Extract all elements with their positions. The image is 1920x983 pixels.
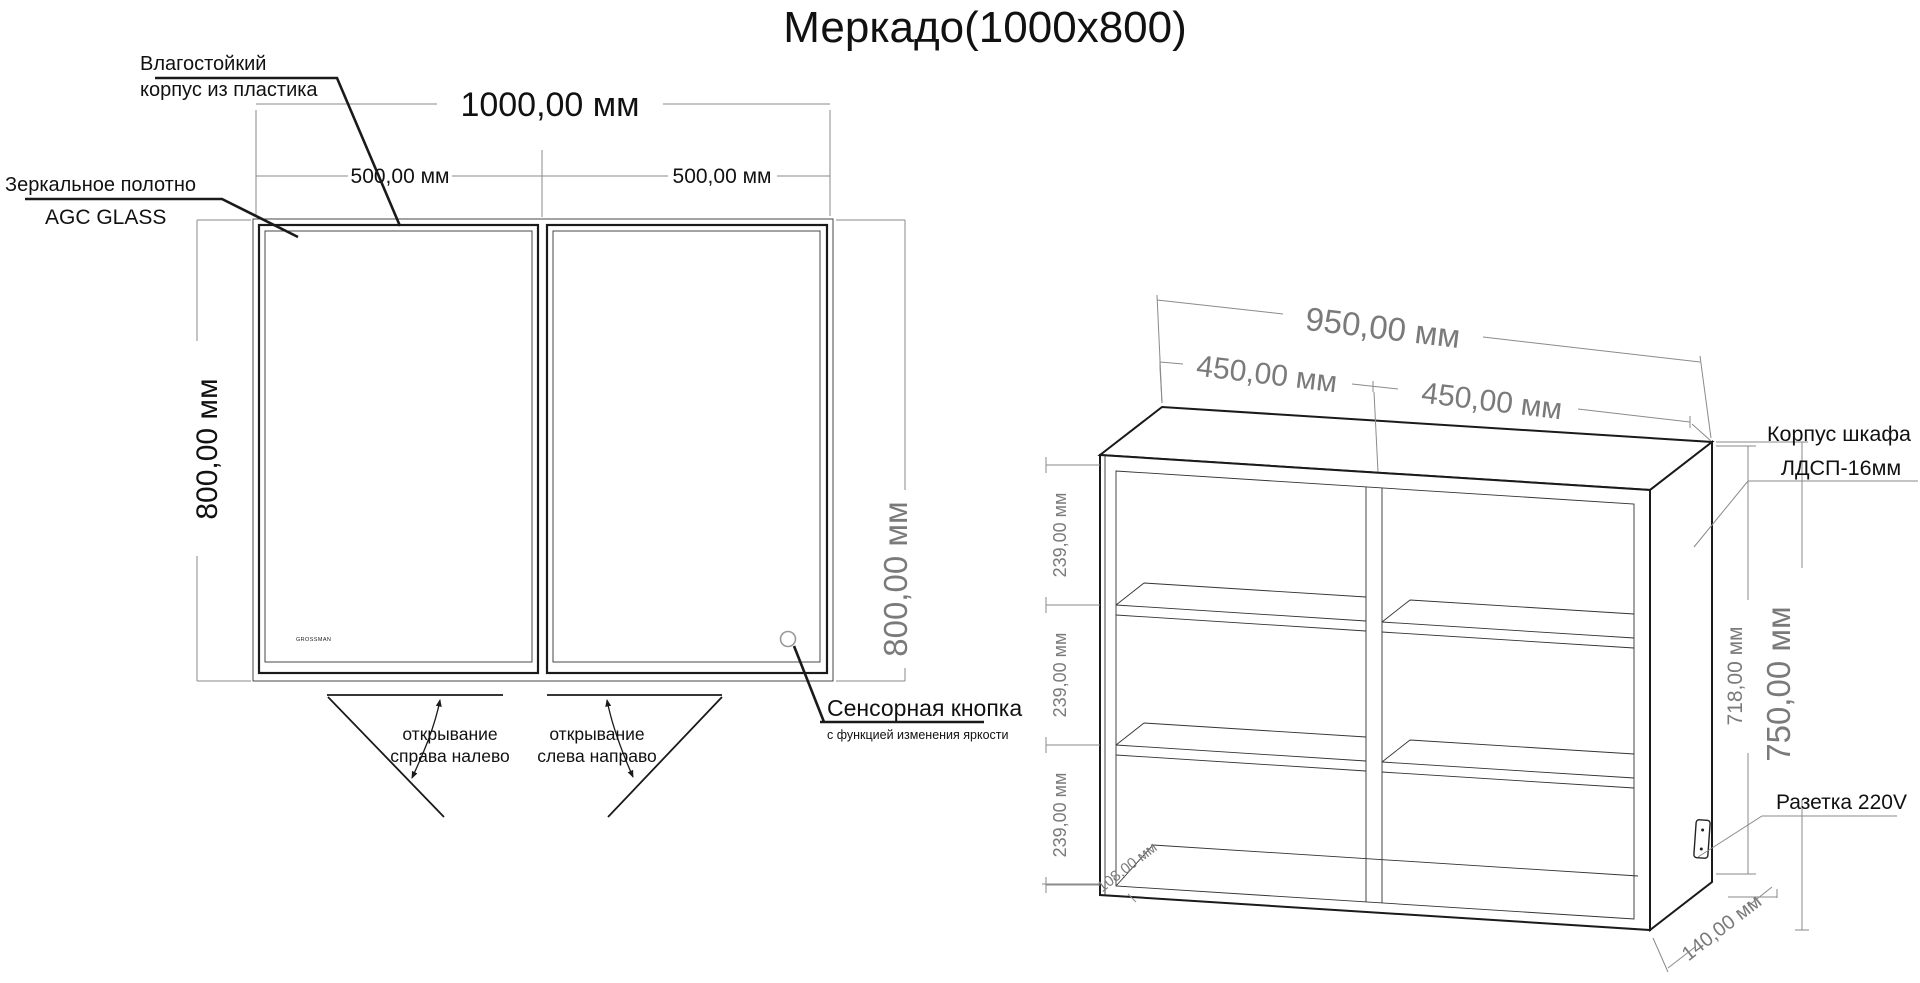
open-right-line1: открывание	[549, 724, 644, 744]
dim-239-1-label: 239,00 мм	[1050, 493, 1070, 578]
dim-left-door-label: 500,00 мм	[351, 165, 450, 188]
callout-sensor-line2: с функцией изменения яркости	[827, 728, 1009, 742]
dim-750-label: 750,00 мм	[1760, 606, 1797, 761]
dim-239-2-label: 239,00 мм	[1050, 633, 1070, 718]
callout-sensor-line1: Сенсорная кнопка	[827, 695, 1022, 721]
dim-total-width: 1000,00 мм	[256, 86, 830, 216]
dim-height-right: 800,00 мм	[836, 220, 914, 681]
dim-450-right-label: 450,00 мм	[1420, 377, 1564, 427]
callout-mirror: Зеркальное полотно AGC GLASS	[5, 174, 298, 237]
technical-drawing: Меркадо(1000x800) GROSSMAN 1000,00 мм 50…	[0, 0, 1920, 983]
open-left-line2: справа налево	[390, 746, 510, 766]
callout-case-line1: Влагостойкий	[140, 53, 266, 75]
dim-inner-height: 718,00 мм	[1716, 446, 1756, 874]
dim-total-width-label: 1000,00 мм	[460, 86, 639, 124]
cabinet-case-outline	[253, 219, 833, 681]
open-left-line1: открывание	[402, 724, 497, 744]
door-swing-right-icon: открывание слева направо	[537, 695, 722, 817]
socket-icon	[1694, 820, 1711, 859]
dim-950-label: 950,00 мм	[1304, 300, 1463, 355]
front-view: GROSSMAN 1000,00 мм 500,00 мм 500,00 мм …	[5, 53, 1022, 817]
callout-socket-leader	[1698, 816, 1897, 857]
open-right-line2: слева направо	[537, 746, 657, 766]
mirror-door-right	[547, 225, 827, 673]
drawing-sheet: Меркадо(1000x800) GROSSMAN 1000,00 мм 50…	[0, 0, 1920, 983]
iso-view: 950,00 мм 450,00 мм 450,00 мм 239,00 мм …	[1042, 295, 1918, 972]
dim-height-right-label: 800,00 мм	[877, 501, 914, 656]
dim-door-widths: 500,00 мм 500,00 мм	[256, 150, 830, 217]
dim-height-left-label: 800,00 мм	[191, 378, 224, 519]
dim-shelf-gaps: 239,00 мм 239,00 мм 239,00 мм	[1046, 457, 1100, 893]
page-title: Меркадо(1000x800)	[783, 3, 1187, 52]
callout-case-line2: корпус из пластика	[140, 79, 318, 101]
dim-140-label: 140,00 мм	[1678, 890, 1766, 965]
dim-right-door-label: 500,00 мм	[673, 165, 772, 188]
callout-sensor: Сенсорная кнопка с функцией изменения яр…	[794, 646, 1022, 742]
cabinet-body	[1100, 407, 1712, 930]
brand-mark: GROSSMAN	[296, 637, 331, 643]
touch-button-icon	[781, 632, 796, 647]
dim-height-left: 800,00 мм	[191, 220, 251, 681]
dim-450-left-label: 450,00 мм	[1195, 350, 1339, 400]
callout-mirror-line2: AGC GLASS	[45, 206, 166, 229]
callout-socket-label: Разетка 220V	[1776, 791, 1907, 814]
dim-239-3-label: 239,00 мм	[1050, 773, 1070, 858]
callout-body-material: Корпус шкафа ЛДСП-16мм	[1694, 422, 1918, 547]
callout-body-leader	[1694, 481, 1918, 547]
callout-mirror-line1: Зеркальное полотно	[5, 174, 196, 196]
mirror-door-left	[259, 225, 538, 673]
door-swing-left-icon: открывание справа налево	[327, 695, 510, 817]
dim-718-label: 718,00 мм	[1724, 627, 1747, 726]
callout-body-line2: ЛДСП-16мм	[1781, 456, 1901, 480]
callout-body-line1: Корпус шкафа	[1767, 422, 1911, 446]
